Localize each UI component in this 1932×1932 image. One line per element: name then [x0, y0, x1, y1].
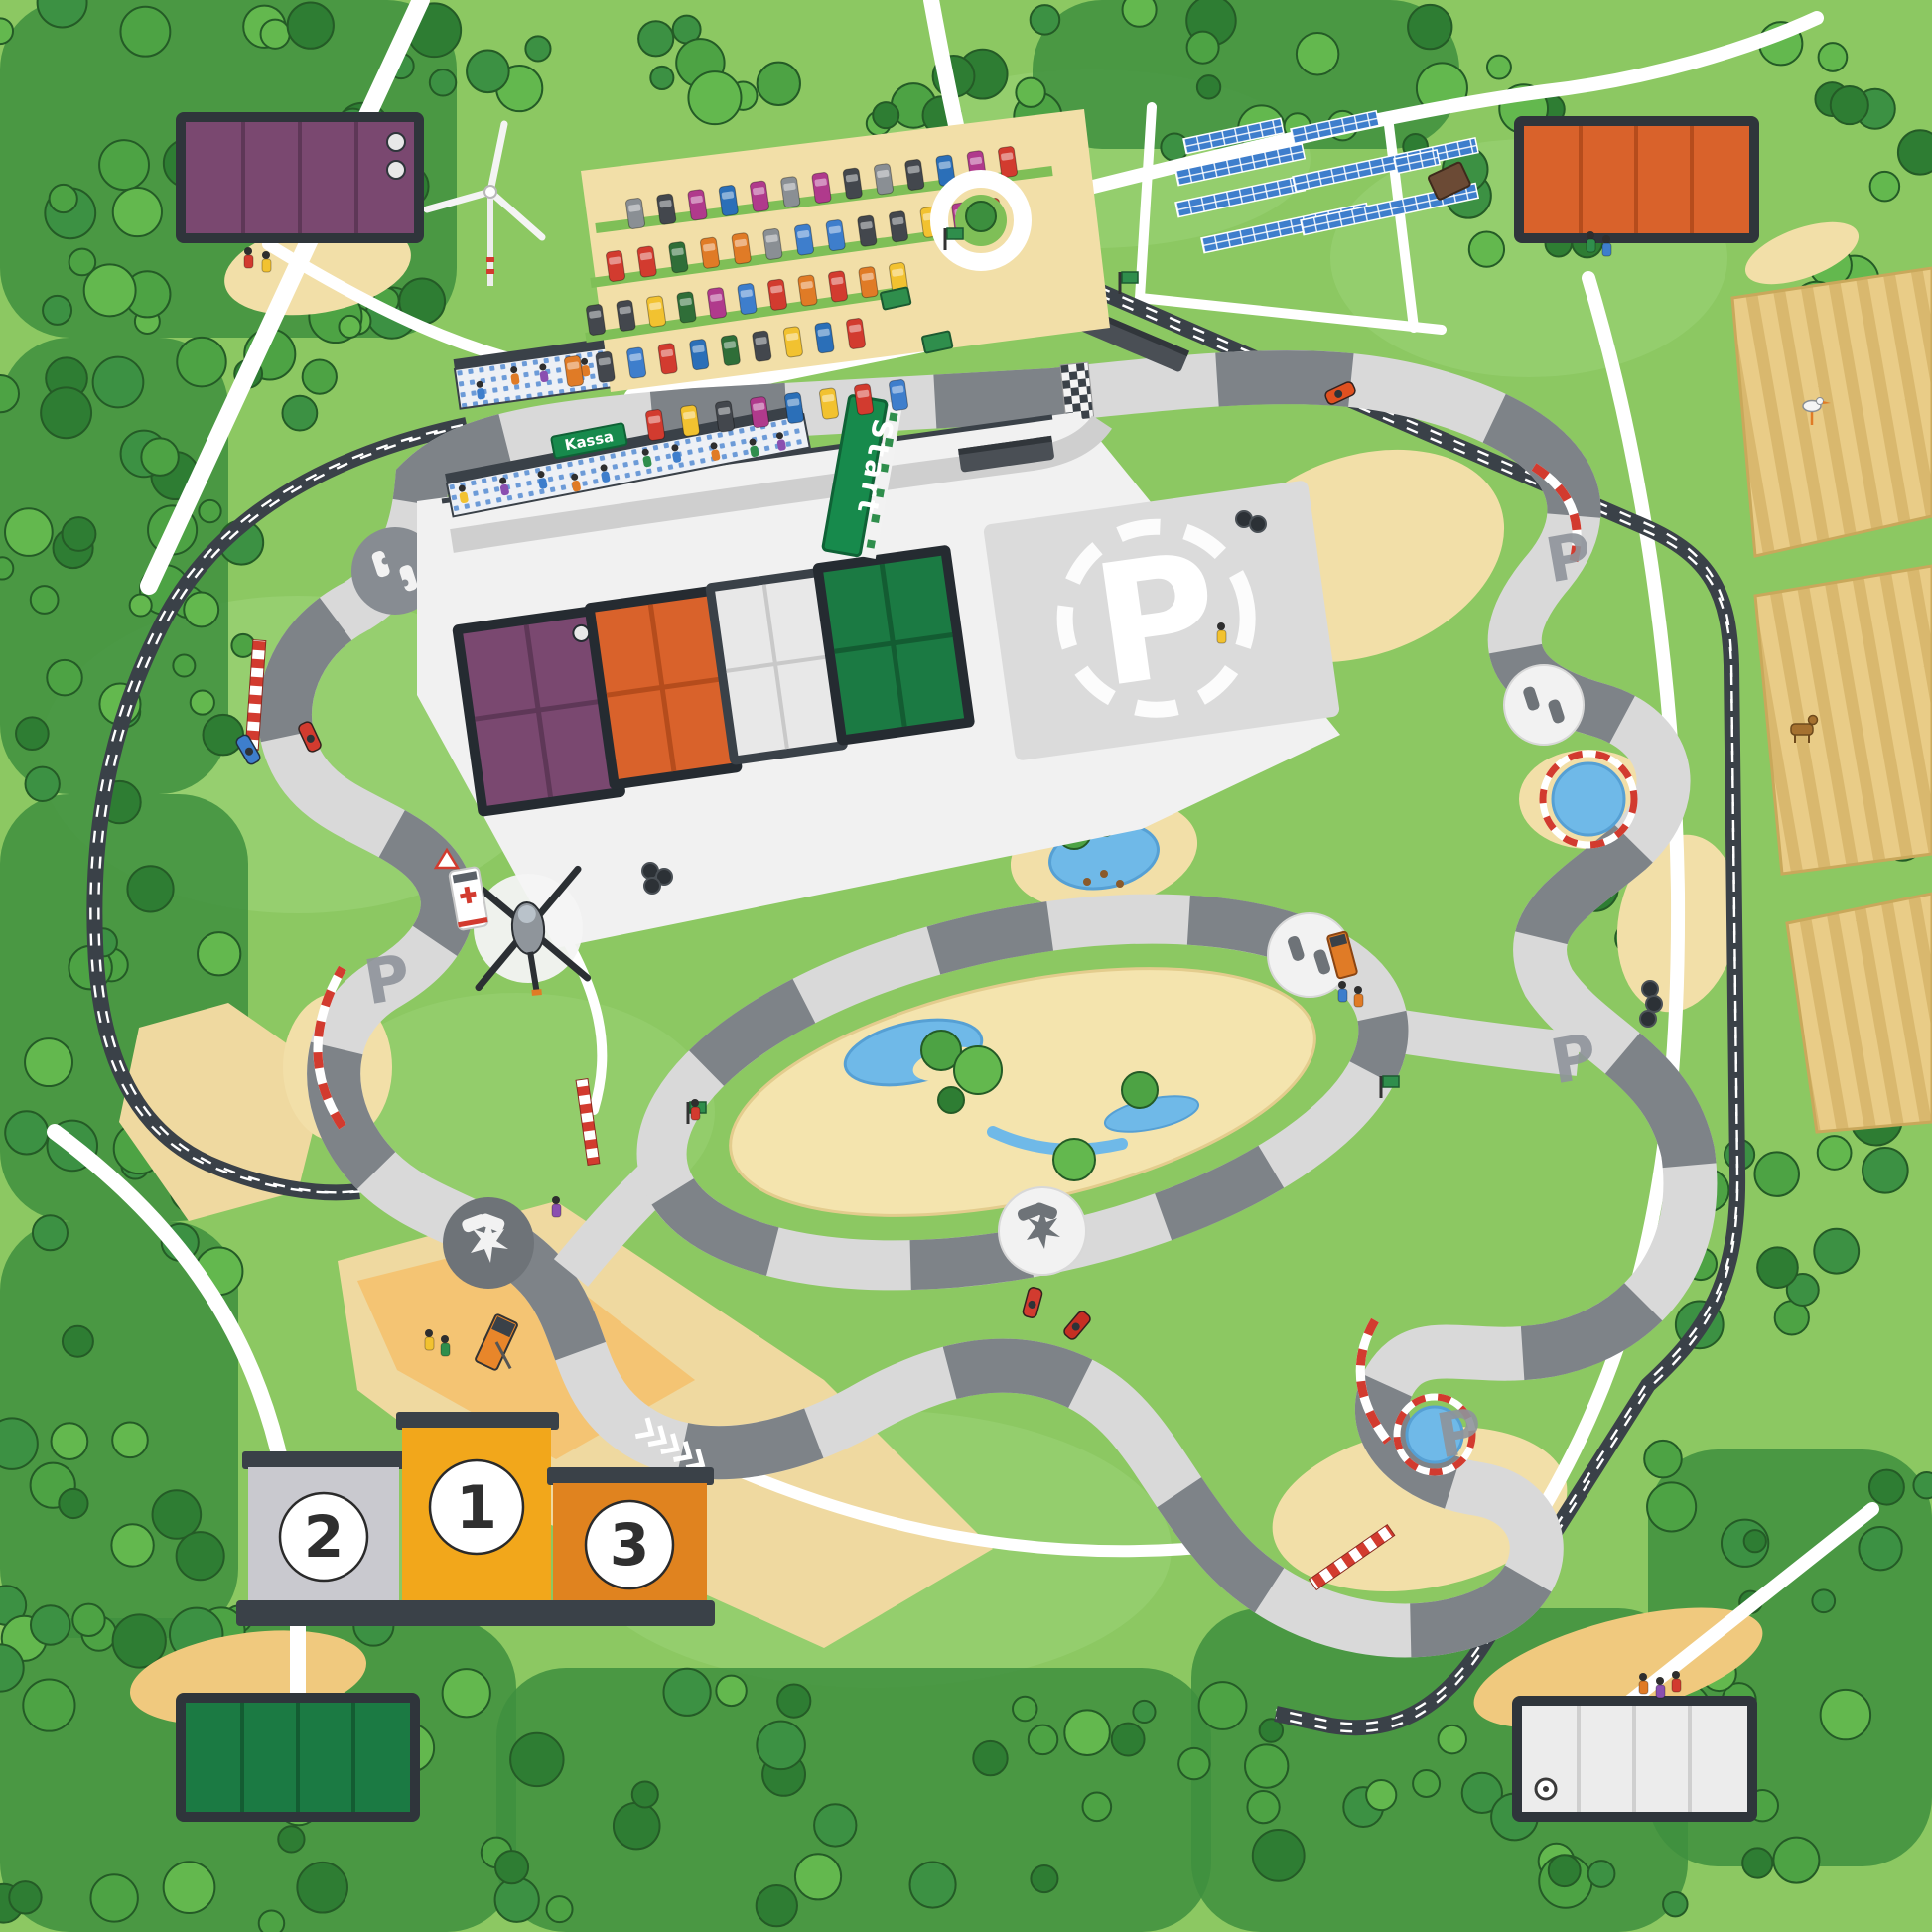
tree-icon: [1863, 1148, 1908, 1193]
tree-icon: [282, 396, 317, 431]
tree-icon: [1245, 1744, 1288, 1787]
person-icon: [1672, 1671, 1681, 1692]
parked-car-icon: [687, 189, 707, 220]
tree-icon: [41, 387, 91, 438]
garage-orange: [1514, 116, 1759, 243]
tree-icon: [52, 1423, 88, 1459]
circuit-map: P P P P: [0, 0, 1932, 1932]
tree-icon: [1869, 1470, 1904, 1505]
parked-car-icon: [826, 219, 846, 251]
parked-car-icon: [689, 339, 709, 370]
parked-car-icon: [797, 275, 817, 307]
tree-icon: [1197, 75, 1220, 98]
tree-icon: [203, 715, 243, 756]
tree-icon: [1647, 1482, 1696, 1531]
parked-car-icon: [676, 291, 696, 323]
tree-icon: [1814, 1229, 1859, 1274]
person-icon: [441, 1335, 450, 1356]
tree-icon: [63, 1326, 93, 1357]
tree-icon: [339, 316, 360, 338]
parked-car-icon: [762, 228, 782, 260]
tree-icon: [467, 51, 509, 93]
tree-icon: [72, 1604, 104, 1636]
tree-icon: [0, 557, 13, 579]
tree-icon: [1588, 1861, 1615, 1887]
parked-car-icon: [752, 331, 771, 362]
crash-badge-icon: [999, 1187, 1086, 1275]
tree-icon: [69, 249, 96, 276]
tree-icon: [430, 69, 456, 95]
tree-icon: [1859, 1527, 1901, 1570]
parked-car-icon: [858, 266, 878, 298]
parked-car-icon: [854, 383, 874, 415]
tree-icon: [127, 866, 173, 911]
tree-icon: [525, 36, 550, 61]
tree-icon: [1016, 78, 1044, 107]
parked-car-icon: [783, 326, 803, 357]
parked-car-icon: [596, 351, 616, 383]
parked-car-icon: [904, 159, 924, 191]
tree-icon: [1013, 1697, 1036, 1721]
tree-icon: [1742, 1848, 1772, 1877]
tree-icon: [650, 67, 673, 89]
tree-icon: [31, 586, 59, 614]
parked-car-icon: [646, 296, 666, 328]
tree-icon: [31, 1605, 70, 1645]
tree-icon: [1408, 5, 1451, 49]
garage-white: [1512, 1696, 1757, 1822]
tree-icon: [130, 594, 152, 616]
podium-first-label: 1: [456, 1473, 497, 1543]
tree-icon: [1549, 1855, 1581, 1886]
tree-icon: [111, 1524, 153, 1566]
parked-car-icon: [700, 237, 720, 269]
parked-car-icon: [794, 224, 814, 256]
person-icon: [1639, 1673, 1648, 1694]
person-icon: [1354, 986, 1363, 1007]
tree-icon: [1187, 32, 1219, 64]
tree-icon: [443, 1669, 490, 1717]
parked-car-icon: [846, 318, 866, 349]
tree-icon: [1439, 1725, 1466, 1753]
tree-icon: [1663, 1892, 1687, 1916]
garage-green: [176, 1693, 420, 1822]
parked-car-icon: [637, 246, 657, 278]
parked-car-icon: [767, 279, 787, 311]
tree-icon: [1744, 1530, 1766, 1552]
parked-car-icon: [889, 210, 908, 242]
person-icon: [1338, 981, 1347, 1002]
tree-icon: [59, 1489, 87, 1518]
parked-car-icon: [645, 409, 665, 441]
tree-icon: [1112, 1724, 1145, 1756]
person-icon: [1587, 231, 1595, 252]
parked-car-icon: [719, 185, 739, 216]
tree-icon: [1773, 1838, 1819, 1883]
tree-icon: [1199, 1682, 1247, 1729]
parked-car-icon: [626, 347, 646, 379]
tree-icon: [757, 1722, 805, 1770]
parked-car-icon: [606, 250, 625, 282]
parked-car-icon: [889, 379, 908, 411]
tree-icon: [99, 140, 149, 190]
tree-icon: [777, 1684, 810, 1717]
tree-icon: [1898, 130, 1932, 174]
tree-icon: [688, 71, 741, 124]
tree-icon: [5, 1111, 48, 1154]
field: [1755, 566, 1932, 874]
parked-car-icon: [715, 400, 735, 432]
tree-icon: [164, 1862, 215, 1913]
tree-icon: [495, 1878, 539, 1922]
parked-car-icon: [843, 168, 863, 200]
field: [1732, 268, 1932, 556]
tree-icon: [177, 1532, 224, 1580]
tree-icon: [9, 1881, 41, 1913]
tree-icon: [1297, 33, 1338, 74]
parked-car-icon: [668, 241, 688, 273]
tree-icon: [814, 1804, 856, 1846]
tree-icon: [1469, 232, 1504, 267]
tree-icon: [112, 1423, 148, 1458]
parked-car-icon: [680, 405, 700, 437]
tree-icon: [43, 296, 71, 325]
tree-icon: [259, 1910, 284, 1932]
tree-icon: [1031, 5, 1060, 35]
tree-icon: [1247, 1791, 1279, 1823]
parked-car-icon: [616, 300, 635, 332]
tree-icon: [173, 655, 195, 677]
person-icon: [1602, 235, 1611, 256]
tree-icon: [16, 717, 49, 750]
tree-icon: [198, 932, 240, 975]
tree-icon: [278, 1826, 304, 1852]
tree-icon: [1133, 1701, 1155, 1723]
tree-icon: [1366, 1780, 1396, 1810]
tree-icon: [1812, 1589, 1835, 1612]
tree-icon: [141, 438, 178, 475]
person-icon: [691, 1099, 700, 1120]
parked-car-icon: [819, 388, 839, 420]
tree-icon: [93, 357, 144, 408]
tree-icon: [25, 1038, 72, 1086]
tree-icon: [120, 7, 170, 57]
parked-car-icon: [784, 392, 804, 424]
tree-icon: [1029, 1725, 1058, 1755]
tree-icon: [873, 102, 898, 128]
tree-icon: [664, 1669, 711, 1716]
tree-icon: [23, 1679, 74, 1730]
tree-icon: [795, 1854, 841, 1899]
overtake-badge-icon: [1504, 665, 1584, 745]
podium-second-label: 2: [304, 1503, 344, 1571]
tree-icon: [1913, 1472, 1932, 1498]
parked-car-icon: [874, 163, 894, 195]
person-icon: [552, 1196, 561, 1217]
parked-car-icon: [857, 215, 877, 247]
tree-icon: [231, 634, 254, 657]
parked-car-icon: [998, 146, 1018, 178]
tree-icon: [184, 592, 218, 626]
parked-car-icon: [721, 335, 741, 366]
tree-icon: [757, 1885, 797, 1926]
tree-icon: [495, 1851, 528, 1883]
parked-car-icon: [586, 304, 606, 336]
person-icon: [1217, 622, 1226, 643]
tree-icon: [33, 1215, 68, 1250]
tree-icon: [199, 500, 220, 522]
parked-car-icon: [732, 232, 752, 264]
parked-car-icon: [750, 181, 769, 212]
tree-icon: [1031, 1865, 1057, 1892]
parked-car-icon: [707, 287, 727, 319]
person-icon: [262, 251, 271, 272]
tree-icon: [1064, 1710, 1110, 1755]
tree-icon: [1819, 43, 1848, 71]
tree-icon: [1083, 1792, 1112, 1821]
tree-icon: [1821, 1690, 1870, 1739]
parked-car-icon: [625, 198, 645, 229]
tree-icon: [632, 1781, 658, 1807]
tree-icon: [547, 1896, 573, 1922]
tree-icon: [1644, 1441, 1682, 1478]
parked-car-icon: [656, 194, 676, 225]
tree-icon: [758, 63, 800, 105]
tree-icon: [90, 1874, 137, 1921]
parked-car-icon: [737, 283, 757, 315]
tree-icon: [1757, 1247, 1798, 1288]
tree-icon: [1754, 1152, 1798, 1195]
tree-icon: [47, 660, 81, 695]
parked-car-icon: [780, 176, 800, 207]
tree-icon: [5, 508, 53, 556]
tree-icon: [1818, 1136, 1852, 1170]
tree-icon: [910, 1862, 956, 1907]
garage-purple: [176, 112, 424, 243]
tree-icon: [191, 690, 214, 714]
parked-car-icon: [658, 343, 678, 374]
tree-icon: [63, 517, 96, 551]
tree-icon: [614, 1803, 660, 1850]
tree-icon: [510, 1733, 563, 1786]
tree-icon: [1487, 56, 1511, 79]
parked-car-icon: [750, 396, 769, 428]
parked-car-icon: [814, 322, 834, 353]
person-icon: [425, 1329, 434, 1350]
tree-icon: [1178, 1748, 1209, 1779]
tree-icon: [113, 188, 162, 236]
pit-building-green: [812, 545, 975, 747]
person-icon: [244, 247, 253, 268]
parked-car-icon: [811, 172, 831, 204]
tree-icon: [638, 21, 673, 56]
tree-icon: [1413, 1770, 1440, 1797]
paddock: P: [983, 480, 1340, 761]
tree-icon: [297, 1863, 347, 1913]
tree-icon: [288, 2, 334, 48]
tree-icon: [153, 1490, 202, 1539]
tree-icon: [50, 185, 77, 212]
tree-icon: [177, 338, 225, 386]
tree-icon: [1123, 0, 1157, 27]
tree-icon: [261, 20, 290, 49]
tree-icon: [113, 1614, 166, 1667]
parked-car-icon: [828, 270, 848, 302]
parked-car-icon: [564, 355, 584, 387]
crash-badge-icon: [443, 1197, 534, 1289]
tree-icon: [1253, 1830, 1305, 1881]
tree-icon: [716, 1676, 746, 1706]
tree-icon: [303, 359, 337, 393]
podium-third-label: 3: [610, 1511, 649, 1579]
tree-icon: [1831, 86, 1868, 124]
tree-icon: [26, 767, 60, 801]
tree-icon: [973, 1741, 1007, 1775]
tree-icon: [1161, 133, 1187, 160]
person-icon: [1656, 1677, 1665, 1698]
tree-icon: [1870, 172, 1900, 202]
